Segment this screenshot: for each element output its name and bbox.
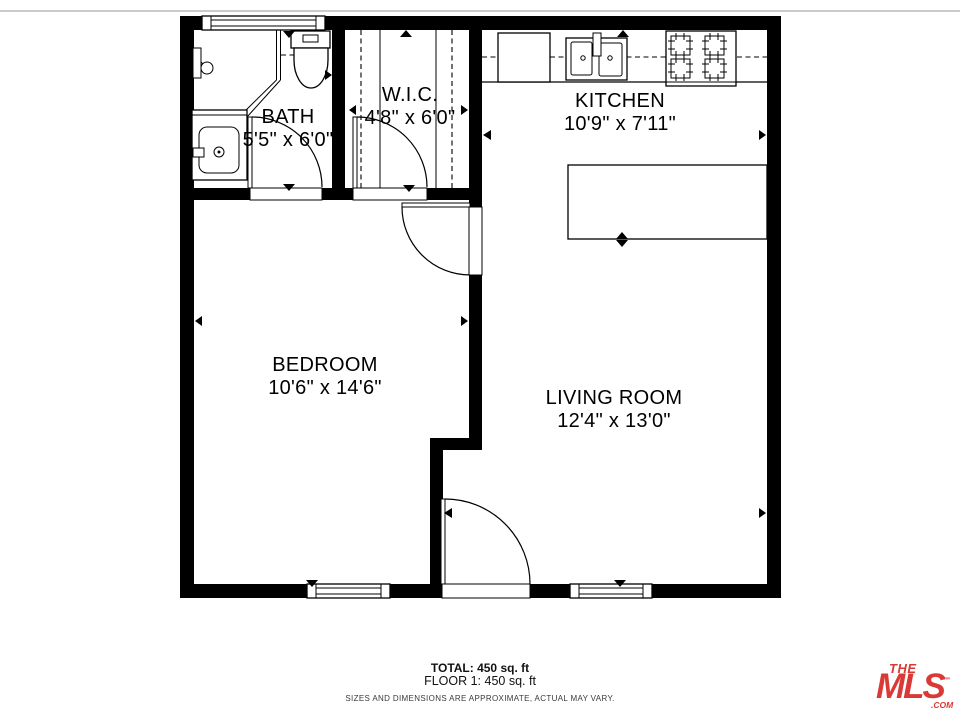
floorplan-drawing — [0, 0, 960, 720]
wall-right — [767, 16, 781, 598]
bath-window — [202, 16, 325, 30]
themls-logo: THE MLS ™ .COM — [874, 656, 958, 714]
floorplan-image: BATH 5'5" x 6'0" W.I.C. 4'8" x 6'0" KITC… — [0, 0, 960, 720]
room-dims: 10'9" x 7'11" — [564, 113, 676, 136]
logo-trademark-icon: ™ — [943, 677, 950, 684]
bedroom-window — [307, 584, 390, 598]
logo-com-text: .COM — [931, 701, 953, 710]
room-label-bedroom: BEDROOM 10'6" x 14'6" — [268, 354, 382, 400]
toilet — [291, 31, 330, 88]
room-label-kitchen: KITCHEN 10'9" x 7'11" — [564, 90, 676, 136]
floor-area-text: FLOOR 1: 450 sq. ft — [0, 674, 960, 688]
room-name: KITCHEN — [564, 90, 676, 113]
room-name: BEDROOM — [268, 354, 382, 377]
room-label-bath: BATH 5'5" x 6'0" — [243, 106, 334, 152]
room-dims: 10'6" x 14'6" — [268, 377, 382, 400]
room-label-wic: W.I.C. 4'8" x 6'0" — [365, 84, 456, 130]
wall-bath-bedroom — [194, 188, 482, 200]
vanity-sink — [192, 110, 247, 180]
shower — [193, 30, 281, 117]
room-dims: 5'5" x 6'0" — [243, 129, 334, 152]
wall-bath-wic — [332, 30, 345, 188]
room-name: LIVING ROOM — [546, 387, 683, 410]
room-label-living-room: LIVING ROOM 12'4" x 13'0" — [546, 387, 683, 433]
kitchen-island — [568, 165, 767, 239]
room-dims: 4'8" x 6'0" — [365, 107, 456, 130]
wall-jog — [430, 438, 482, 450]
disclaimer-text: SIZES AND DIMENSIONS ARE APPROXIMATE, AC… — [0, 694, 960, 703]
total-area-text: TOTAL: 450 sq. ft — [0, 661, 960, 675]
kitchen-sink — [566, 33, 627, 80]
walls — [180, 16, 781, 598]
room-name: W.I.C. — [365, 84, 456, 107]
refrigerator — [498, 33, 550, 82]
bedroom-door — [402, 203, 482, 275]
room-dims: 12'4" x 13'0" — [546, 410, 683, 433]
wall-left — [180, 16, 194, 598]
entry-door — [441, 499, 530, 598]
living-room-window — [570, 584, 652, 598]
room-name: BATH — [243, 106, 334, 129]
logo-mls-text: MLS — [876, 669, 944, 704]
stove — [666, 31, 736, 86]
